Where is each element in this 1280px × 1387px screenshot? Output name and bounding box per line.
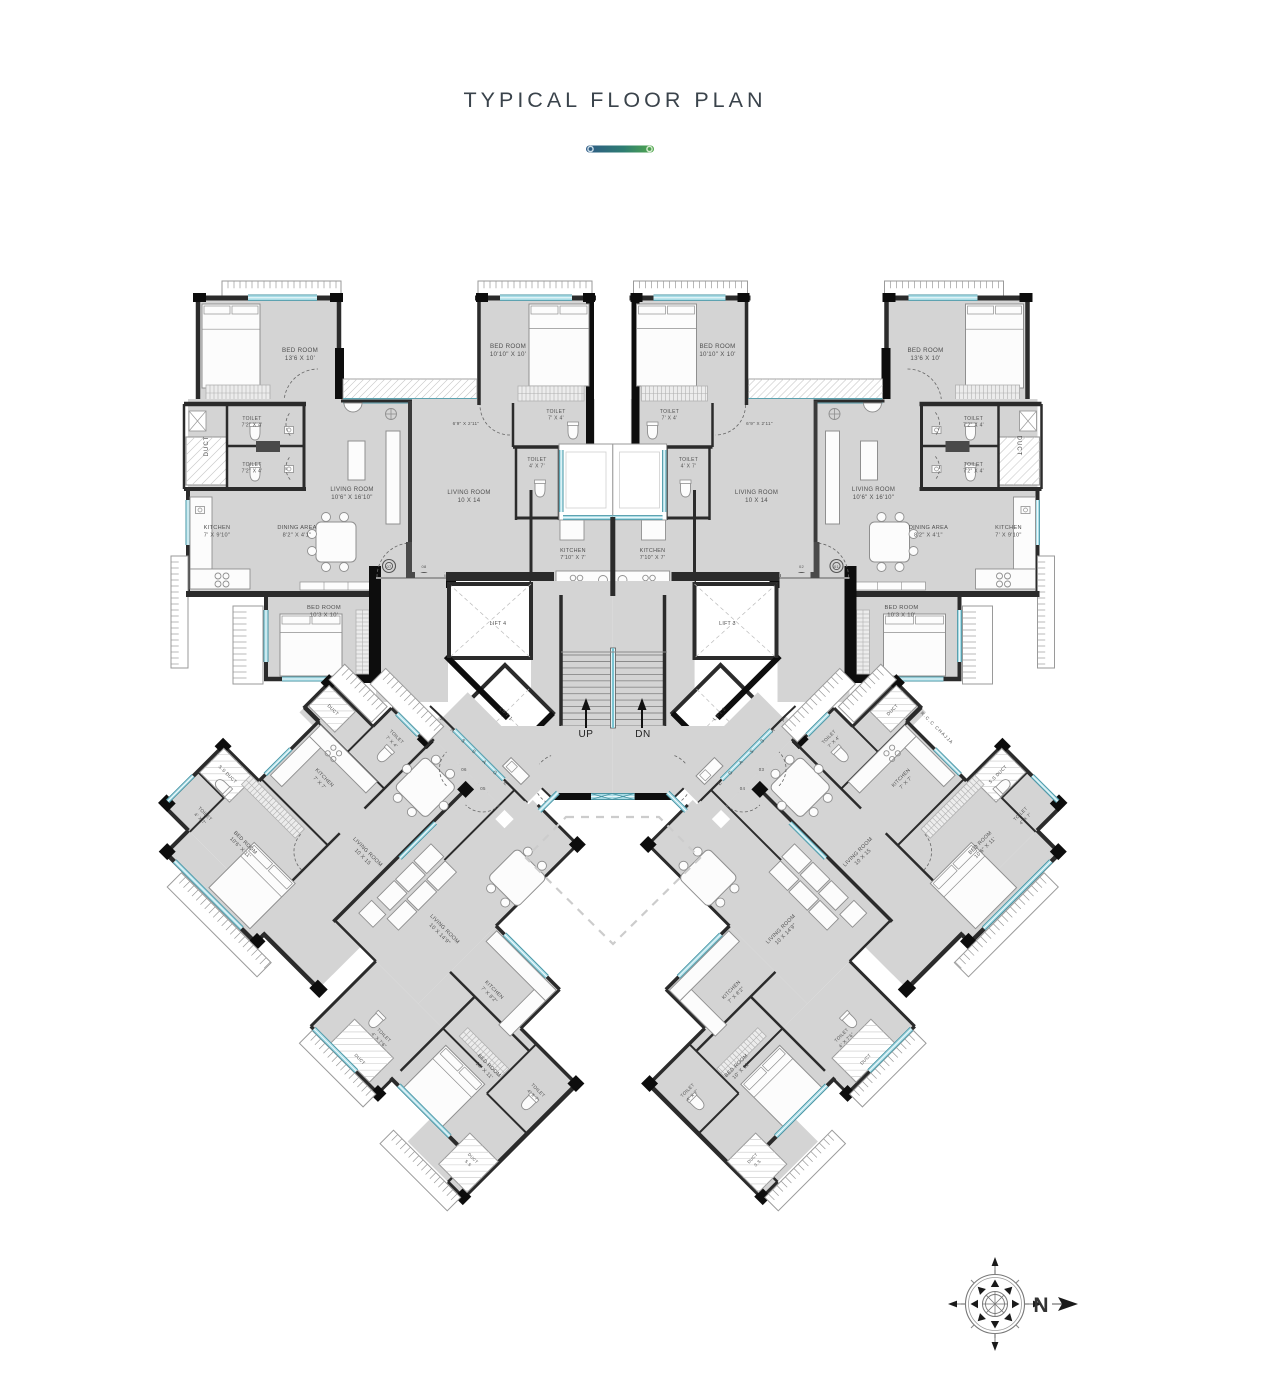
svg-text:7' X 4': 7' X 4' bbox=[548, 416, 564, 422]
svg-text:LIVING ROOM: LIVING ROOM bbox=[447, 490, 490, 496]
svg-text:7'2" X 4': 7'2" X 4' bbox=[963, 469, 984, 475]
svg-text:04: 04 bbox=[740, 786, 746, 791]
svg-text:DINING AREA: DINING AREA bbox=[909, 525, 948, 531]
svg-text:LIFT 4: LIFT 4 bbox=[490, 621, 507, 627]
svg-text:BED ROOM: BED ROOM bbox=[907, 347, 943, 354]
svg-text:8'2" X 4'1": 8'2" X 4'1" bbox=[914, 533, 943, 539]
svg-text:10'10" X 10': 10'10" X 10' bbox=[490, 351, 526, 358]
svg-text:03: 03 bbox=[759, 767, 765, 772]
svg-text:KITCHEN: KITCHEN bbox=[204, 525, 231, 531]
svg-text:10'3 X 10': 10'3 X 10' bbox=[887, 613, 915, 619]
svg-text:4' X 7': 4' X 7' bbox=[681, 464, 697, 470]
svg-text:DUCT: DUCT bbox=[204, 436, 210, 457]
svg-text:N: N bbox=[1033, 1294, 1048, 1317]
svg-text:10'6" X 16'10": 10'6" X 16'10" bbox=[331, 495, 372, 501]
svg-text:BED ROOM: BED ROOM bbox=[699, 343, 735, 350]
svg-text:7' X 4': 7' X 4' bbox=[662, 416, 678, 422]
svg-text:08: 08 bbox=[421, 564, 427, 569]
svg-text:7'10" X 7': 7'10" X 7' bbox=[560, 555, 586, 561]
svg-text:TOILET: TOILET bbox=[546, 409, 565, 415]
svg-text:TOILET: TOILET bbox=[660, 409, 679, 415]
svg-text:05: 05 bbox=[480, 786, 486, 791]
svg-text:4' X 7': 4' X 7' bbox=[529, 464, 545, 470]
svg-text:BED ROOM: BED ROOM bbox=[885, 605, 919, 611]
svg-text:10 X 14: 10 X 14 bbox=[458, 498, 481, 504]
svg-text:KITCHEN: KITCHEN bbox=[560, 548, 586, 554]
svg-text:TOILET: TOILET bbox=[527, 457, 546, 463]
svg-text:UP: UP bbox=[579, 729, 594, 740]
svg-text:LIVING ROOM: LIVING ROOM bbox=[852, 487, 895, 493]
svg-text:10'6" X 16'10": 10'6" X 16'10" bbox=[853, 495, 894, 501]
svg-text:7' X 9'10": 7' X 9'10" bbox=[204, 533, 230, 539]
svg-text:BED ROOM: BED ROOM bbox=[307, 605, 341, 611]
svg-text:07: 07 bbox=[386, 564, 392, 569]
svg-text:KITCHEN: KITCHEN bbox=[640, 548, 666, 554]
svg-text:DN: DN bbox=[635, 729, 650, 740]
svg-text:KITCHEN: KITCHEN bbox=[995, 525, 1022, 531]
svg-text:10 X 14: 10 X 14 bbox=[745, 498, 768, 504]
svg-text:BED ROOM: BED ROOM bbox=[490, 343, 526, 350]
svg-text:TOILET: TOILET bbox=[964, 462, 983, 468]
svg-text:7'10" X 7': 7'10" X 7' bbox=[640, 555, 666, 561]
svg-text:BED ROOM: BED ROOM bbox=[282, 347, 318, 354]
svg-text:01: 01 bbox=[834, 564, 840, 569]
svg-text:6'9" X 2'11": 6'9" X 2'11" bbox=[746, 421, 773, 426]
svg-text:7'2" X 4': 7'2" X 4' bbox=[242, 423, 263, 429]
svg-text:13'6 X 10': 13'6 X 10' bbox=[910, 355, 940, 362]
svg-text:TYPICAL FLOOR PLAN: TYPICAL FLOOR PLAN bbox=[464, 88, 767, 112]
svg-text:6'9" X 2'11": 6'9" X 2'11" bbox=[453, 421, 480, 426]
svg-text:10'10" X 10': 10'10" X 10' bbox=[699, 351, 735, 358]
svg-text:TOILET: TOILET bbox=[679, 457, 698, 463]
svg-text:TOILET: TOILET bbox=[242, 416, 261, 422]
svg-text:TOILET: TOILET bbox=[964, 416, 983, 422]
svg-text:DINING AREA: DINING AREA bbox=[277, 525, 316, 531]
svg-text:7'2" X 4': 7'2" X 4' bbox=[963, 423, 984, 429]
svg-text:LIVING ROOM: LIVING ROOM bbox=[330, 487, 373, 493]
svg-text:7' X 9'10": 7' X 9'10" bbox=[995, 533, 1021, 539]
svg-text:DUCT: DUCT bbox=[1016, 436, 1022, 457]
svg-text:LIVING ROOM: LIVING ROOM bbox=[735, 490, 778, 496]
svg-text:02: 02 bbox=[799, 564, 805, 569]
svg-text:7'2" X 4': 7'2" X 4' bbox=[242, 469, 263, 475]
svg-text:06: 06 bbox=[461, 767, 467, 772]
svg-text:LIFT 3: LIFT 3 bbox=[719, 621, 736, 627]
svg-text:13'6 X 10': 13'6 X 10' bbox=[285, 355, 315, 362]
svg-text:TOILET: TOILET bbox=[242, 462, 261, 468]
svg-text:10'3 X 10': 10'3 X 10' bbox=[310, 613, 338, 619]
svg-text:8'2" X 4'1": 8'2" X 4'1" bbox=[283, 533, 312, 539]
